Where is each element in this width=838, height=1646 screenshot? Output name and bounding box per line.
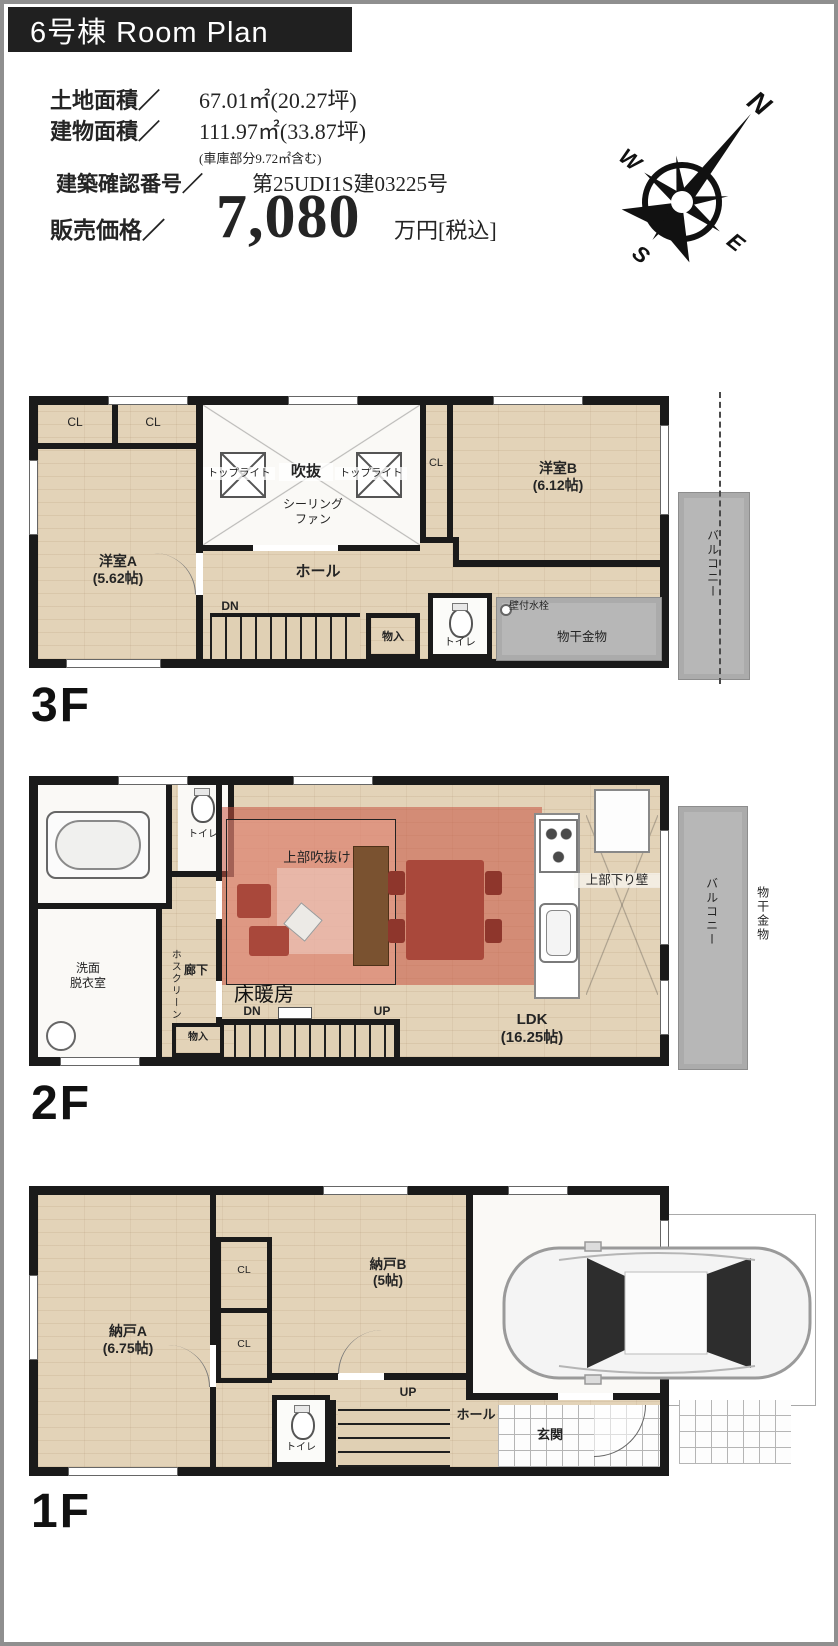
window: [323, 1186, 408, 1195]
floor-label-1f: 1F: [31, 1484, 91, 1539]
closet-3f-a-label: CL: [40, 415, 110, 430]
floor-plan-2f: バルコニー 物干金物 トイレ 洗面 脱衣室 ホスクリーン 廊下: [29, 776, 799, 1131]
price-unit: 万円[税込]: [394, 218, 497, 245]
window: [293, 776, 373, 785]
window: [29, 1275, 38, 1360]
compass-w: W: [614, 143, 648, 177]
balcony-2f: バルコニー: [678, 806, 748, 1070]
window: [660, 830, 669, 945]
wall: [166, 785, 172, 909]
closet-1f-b-label: CL: [221, 1338, 267, 1351]
floor-plan-1f: 納戸A (6.75帖) CL CL 納戸B (5帖) トイレ: [29, 1172, 829, 1547]
entrance-label: 玄関: [520, 1427, 580, 1443]
building-area-label: 建物面積／: [50, 119, 160, 146]
wall: [156, 909, 162, 1057]
compass-rose-icon: N W E S: [579, 84, 794, 279]
wall: [330, 1400, 336, 1467]
up-stairs-2f-label: UP: [364, 1004, 400, 1019]
confirmation-number-label: 建築確認番号／: [56, 172, 203, 198]
balcony-3f-label: バルコニー: [705, 529, 720, 599]
staircase-3f: [210, 617, 360, 659]
closet-3f-b-label: CL: [118, 415, 188, 430]
toplight-right-label: トップライト: [335, 467, 407, 480]
sofa-icon: [237, 884, 271, 918]
down-stairs-label: DN: [210, 599, 250, 614]
title-banner: 6号棟 Room Plan: [8, 7, 352, 52]
toilet-room-3f: トイレ: [428, 593, 492, 659]
window: [288, 396, 358, 405]
sink-icon: [539, 903, 578, 963]
ceiling-fan-label: シーリング ファン: [258, 497, 368, 526]
storage-2f-label: 物入: [176, 1032, 220, 1044]
drying-hardware-3f-label: 物干金物: [542, 630, 622, 645]
building-area-note: (車庫部分9.72㎡含む): [199, 151, 321, 167]
door-gap: [216, 981, 222, 1017]
void-area-3f: トップライト 吹抜 トップライト シーリング ファン: [203, 405, 420, 545]
ldk-label: LDK (16.25帖): [476, 1011, 588, 1048]
window: [68, 1467, 178, 1476]
void-label: 吹抜: [279, 463, 333, 481]
down-stairs-2f-label: DN: [234, 1004, 270, 1019]
sofa-icon: [249, 926, 289, 956]
toilet-icon: [291, 1410, 315, 1440]
building-outline-2f: トイレ 洗面 脱衣室 ホスクリーン 廊下: [29, 776, 669, 1066]
window: [118, 776, 188, 785]
floor-label-3f: 3F: [31, 678, 91, 733]
wall: [420, 405, 426, 537]
window: [493, 396, 583, 405]
window: [66, 659, 161, 668]
chair-icon: [388, 919, 405, 943]
building-area-value: 111.97㎡(33.87坪): [199, 119, 366, 146]
wall: [453, 560, 660, 567]
bathtub-icon: [46, 811, 150, 879]
boundary-dashed-line-3f: [719, 392, 721, 684]
closet-1f-stack: CL CL: [216, 1237, 272, 1383]
building-outline-3f: CL CL 洋室A (5.62帖) トップライト 吹抜: [29, 396, 669, 668]
land-area-value: 67.01㎡(20.27坪): [199, 88, 357, 115]
land-area-label: 土地面積／: [50, 88, 160, 115]
floor-plan-3f: バルコニー CL CL 洋室A (5.62帖): [29, 396, 774, 736]
bathroom-2f: [38, 785, 166, 903]
chair-icon: [388, 871, 405, 895]
price-value: 7,080: [216, 180, 361, 256]
storage-3f-label: 物入: [371, 631, 415, 644]
room-b-3f-label: 洋室B (6.12帖): [478, 460, 638, 494]
wall: [466, 1195, 473, 1400]
chair-icon: [485, 871, 502, 895]
floor-label-2f: 2F: [31, 1076, 91, 1131]
staircase-1f: [338, 1407, 450, 1467]
entrance-porch: [679, 1400, 791, 1464]
washbasin-icon: [46, 1021, 76, 1051]
wall: [38, 443, 196, 449]
toilet-3f-label: トイレ: [433, 636, 487, 649]
chair-icon: [485, 919, 502, 943]
washroom-2f: 洗面 脱衣室: [38, 909, 156, 1057]
upper-void-outline: 上部吹抜け: [226, 819, 396, 985]
balcony-3f-lower: 壁付水栓 物干金物: [496, 597, 662, 661]
window: [660, 425, 669, 515]
toilet-icon: [449, 608, 473, 638]
door-arc: [338, 1330, 382, 1374]
compass-n: N: [742, 85, 778, 122]
washroom-label: 洗面 脱衣室: [46, 961, 130, 990]
storage-3f: 物入: [366, 613, 420, 659]
door-gap: [558, 1393, 613, 1400]
hanging-wall-label: 上部下り壁: [574, 873, 660, 888]
compass-s: S: [628, 240, 655, 269]
hall-3f-label: ホール: [268, 563, 368, 581]
closet-1f-a-label: CL: [221, 1264, 267, 1277]
corridor-label: 廊下: [174, 963, 218, 978]
wall: [196, 405, 203, 659]
drying-hardware-2f-label: 物干金物: [755, 886, 770, 942]
wall: [394, 1019, 400, 1057]
toilet-room-1f: トイレ: [272, 1395, 330, 1467]
up-stairs-1f-label: UP: [390, 1385, 426, 1400]
kitchen-counter: [534, 813, 580, 999]
entrance-floor: 玄関: [498, 1405, 660, 1467]
storage-b-label: 納戸B (5帖): [318, 1257, 458, 1290]
staircase-2f: [234, 1025, 394, 1057]
refrigerator: [594, 789, 650, 853]
wall: [447, 405, 453, 537]
wall: [221, 1308, 267, 1313]
door-gap: [338, 1373, 384, 1380]
wall-faucet-label: 壁付水栓: [509, 601, 569, 613]
wall: [453, 537, 459, 567]
balcony-2f-label: バルコニー: [704, 877, 719, 947]
window: [508, 1186, 568, 1195]
window: [29, 460, 38, 535]
window: [60, 1057, 140, 1066]
upper-void-label: 上部吹抜け: [247, 850, 387, 866]
price-label: 販売価格／: [50, 217, 165, 245]
balcony-3f: バルコニー: [678, 492, 750, 680]
handrail-symbol: [278, 1007, 312, 1019]
car-top-view-icon: [499, 1238, 815, 1388]
toilet-1f-label: トイレ: [277, 1442, 325, 1454]
window: [108, 396, 188, 405]
toplight-left-label: トップライト: [203, 467, 275, 480]
closet-3f-c-label: CL: [416, 457, 456, 470]
door-arc: [168, 1345, 210, 1387]
stove-icon: [539, 819, 578, 873]
compass-e: E: [722, 228, 750, 258]
wall: [420, 537, 453, 543]
dining-table-icon: [406, 860, 484, 960]
page-title: 6号棟 Room Plan: [30, 9, 269, 51]
entrance-door-arc: [594, 1405, 646, 1457]
window: [660, 980, 669, 1035]
opening: [253, 545, 338, 551]
flyer-page: 6号棟 Room Plan 土地面積／ 67.01㎡(20.27坪) 建物面積／…: [0, 0, 838, 1646]
toilet-icon: [191, 793, 215, 823]
door-gap: [196, 553, 203, 595]
storage-2f: 物入: [172, 1023, 224, 1057]
